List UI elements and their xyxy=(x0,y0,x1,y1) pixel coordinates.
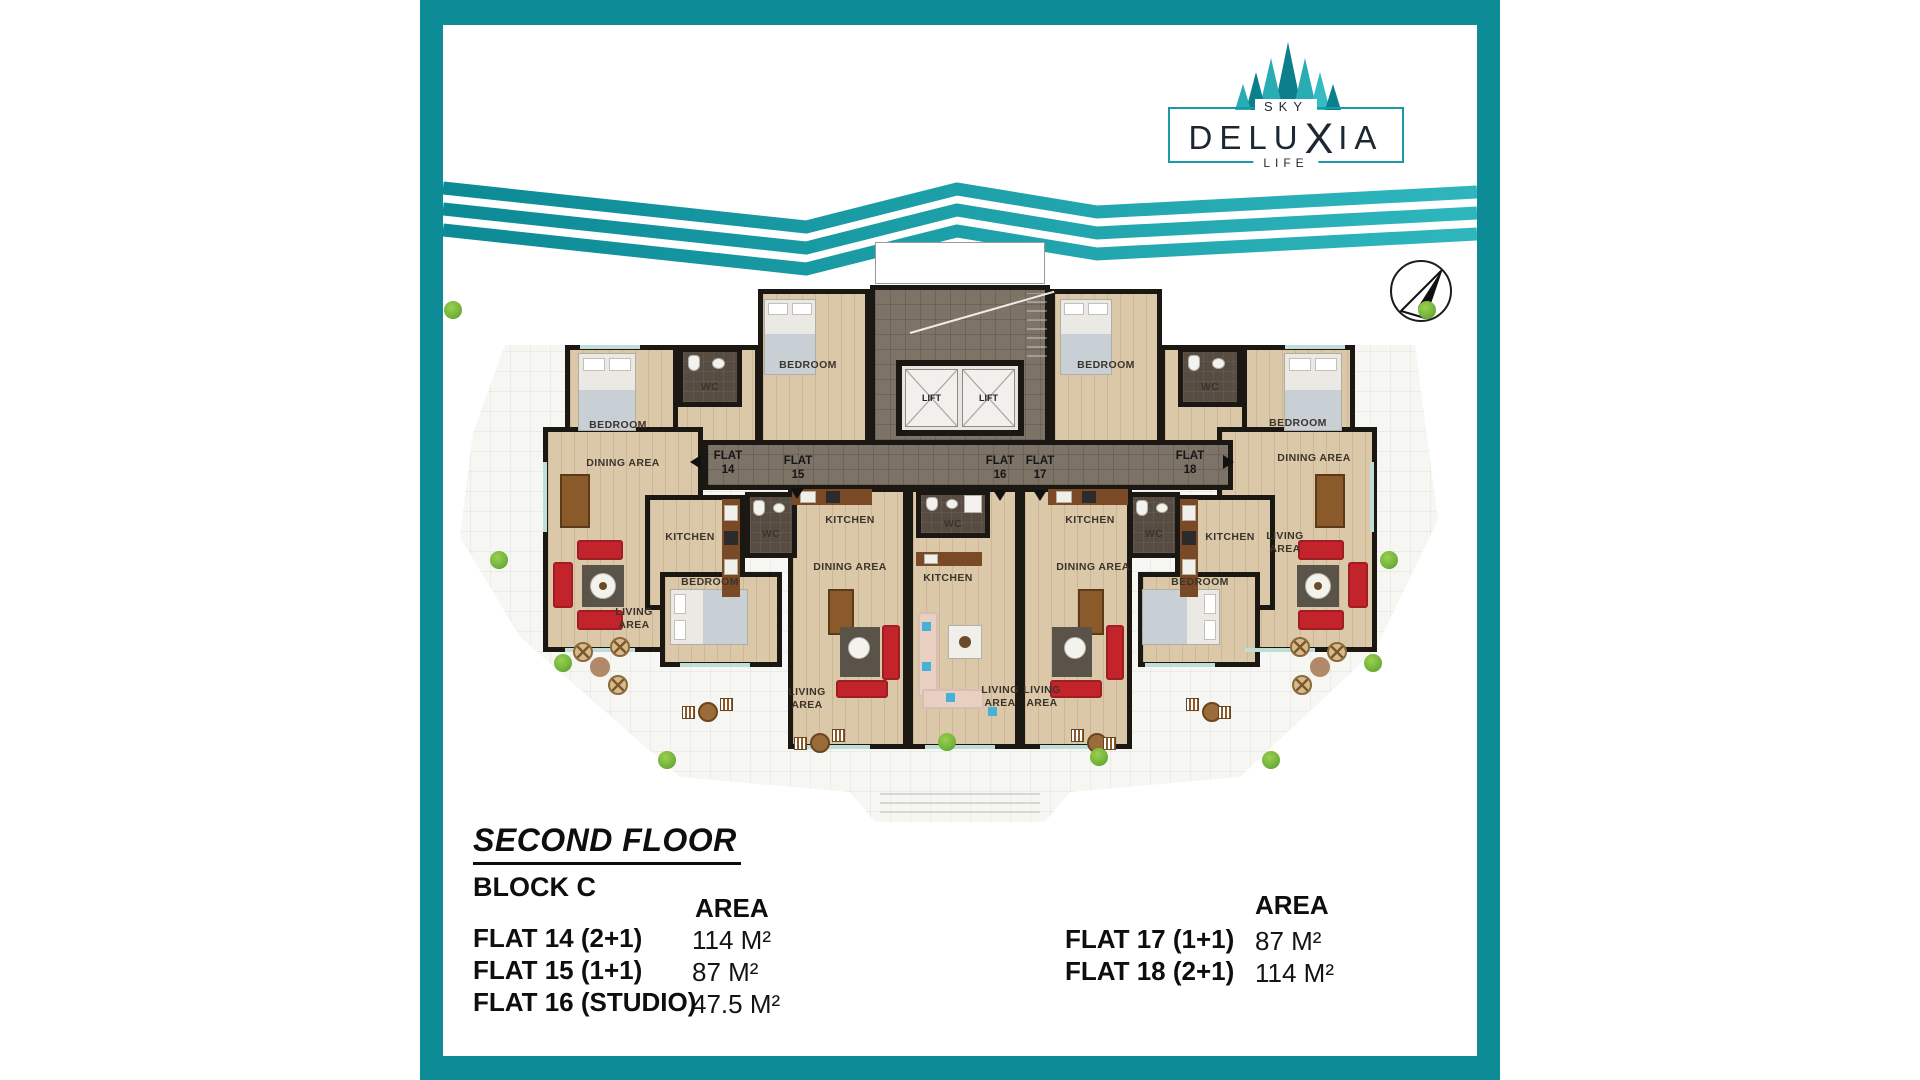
flat-number: 14 xyxy=(722,464,735,476)
balcony-table xyxy=(810,733,830,753)
logo: SKY DELUXIA LIFE xyxy=(1168,34,1412,168)
logo-name-post: IA xyxy=(1338,119,1383,156)
room-label-kitchen: KITCHEN xyxy=(1065,514,1114,526)
flat-row-area: 87 M² xyxy=(692,957,758,988)
plant xyxy=(554,654,572,672)
coffee-table-center xyxy=(1314,582,1322,590)
room-label-bedroom: BEDROOM xyxy=(589,419,647,431)
sink xyxy=(712,358,725,369)
room-label-kitchen: KITCHEN xyxy=(825,514,874,526)
lift-label: LIFT xyxy=(979,393,998,403)
sink xyxy=(773,503,785,513)
flat-word: FLAT xyxy=(986,455,1015,467)
room-label-living: LIVINGAREA xyxy=(1023,684,1060,710)
frame-right xyxy=(1477,0,1500,1080)
flat-number: 15 xyxy=(792,469,805,481)
stove xyxy=(724,531,738,545)
room-label-bedroom: BEDROOM xyxy=(1171,576,1229,588)
flat-word: FLAT xyxy=(1176,450,1205,462)
room-label-wc: WC xyxy=(1145,528,1163,540)
entry-arrow-flat-15 xyxy=(790,488,804,499)
room-label-kitchen: KITCHEN xyxy=(665,531,714,543)
plant xyxy=(1380,551,1398,569)
rattan-chair xyxy=(610,637,630,657)
toilet xyxy=(688,355,700,371)
block-subtitle: BLOCK C xyxy=(473,872,596,903)
logo-sky-text: SKY xyxy=(1255,99,1317,114)
rattan-chair xyxy=(608,675,628,695)
room-label-dining: DINING AREA xyxy=(1056,561,1129,573)
room-label-dining: DINING AREA xyxy=(813,561,886,573)
entry-arrow-flat-18 xyxy=(1223,455,1234,469)
sofa xyxy=(577,540,623,560)
entry-arrow-flat-16 xyxy=(993,490,1007,501)
living-line2: AREA xyxy=(618,619,649,631)
flat-tag-16: FLAT16 xyxy=(983,455,1017,483)
room-label-wc: WC xyxy=(701,381,719,393)
living-line2: AREA xyxy=(791,699,822,711)
rattan-chair xyxy=(1290,637,1310,657)
pillow-blue xyxy=(922,662,931,671)
balcony-chair xyxy=(720,698,733,711)
room-label-bedroom: BEDROOM xyxy=(779,359,837,371)
plant xyxy=(1090,748,1108,766)
living-line1: LIVING xyxy=(788,686,825,698)
rattan-chair xyxy=(573,642,593,662)
flat-number: 16 xyxy=(994,469,1007,481)
stairs xyxy=(1027,293,1047,357)
room-label-living: LIVINGAREA xyxy=(981,684,1018,710)
room-label-bedroom: BEDROOM xyxy=(681,576,739,588)
shower xyxy=(964,495,982,513)
toilet xyxy=(926,497,938,511)
lift-cell: LIFT xyxy=(962,369,1015,427)
lift-shaft: LIFT LIFT xyxy=(896,360,1024,436)
balcony-chair xyxy=(682,706,695,719)
flat-tag-14: FLAT14 xyxy=(711,450,745,478)
balcony-chair xyxy=(832,729,845,742)
sink xyxy=(724,559,738,575)
flat-word: FLAT xyxy=(1026,455,1055,467)
dining-table xyxy=(560,474,590,528)
flat-row-label: FLAT 18 (2+1) xyxy=(1065,956,1234,987)
flat-row-area: 87 M² xyxy=(1255,926,1321,957)
window xyxy=(1370,462,1374,532)
sink xyxy=(1212,358,1225,369)
flat-row-label: FLAT 16 (STUDIO) xyxy=(473,987,696,1018)
rattan-chair xyxy=(1292,675,1312,695)
frame-bottom xyxy=(420,1056,1500,1080)
balcony-chair xyxy=(794,737,807,750)
plant xyxy=(658,751,676,769)
flat-row-label: FLAT 15 (1+1) xyxy=(473,955,642,986)
page: SKY DELUXIA LIFE xyxy=(0,0,1920,1080)
dining-table xyxy=(1315,474,1345,528)
window xyxy=(680,663,750,667)
plant xyxy=(938,733,956,751)
logo-frame: SKY DELUXIA LIFE xyxy=(1168,107,1404,163)
window xyxy=(580,345,640,349)
balcony-chair xyxy=(1071,729,1084,742)
sofa xyxy=(1106,625,1124,680)
toilet xyxy=(1188,355,1200,371)
rattan-chair xyxy=(1327,642,1347,662)
flat-row-area: 114 M² xyxy=(692,925,771,956)
balcony-chair xyxy=(1218,706,1231,719)
plant xyxy=(1262,751,1280,769)
room-label-kitchen: KITCHEN xyxy=(1205,531,1254,543)
flat-tag-17: FLAT17 xyxy=(1023,455,1057,483)
stove xyxy=(826,491,840,503)
flat-row-area: 114 M² xyxy=(1255,958,1334,989)
bed xyxy=(670,589,748,645)
flat-row-label: FLAT 17 (1+1) xyxy=(1065,924,1234,955)
sink xyxy=(924,554,938,564)
balcony-chair xyxy=(1103,737,1116,750)
area-header-right: AREA xyxy=(1255,890,1329,921)
living-line1: LIVING xyxy=(615,606,652,618)
flat-number: 18 xyxy=(1184,464,1197,476)
flat-row-label: FLAT 14 (2+1) xyxy=(473,923,642,954)
plant xyxy=(444,301,462,319)
sofa xyxy=(1348,562,1368,608)
window xyxy=(1145,663,1215,667)
sink xyxy=(1182,505,1196,521)
window xyxy=(925,745,995,749)
sofa xyxy=(553,562,573,608)
living-line1: LIVING xyxy=(1266,530,1303,542)
sink xyxy=(1056,491,1072,503)
plant xyxy=(1364,654,1382,672)
pillow-blue xyxy=(946,693,955,702)
coffee-table-center xyxy=(599,582,607,590)
stove xyxy=(1082,491,1096,503)
sofa xyxy=(1298,540,1344,560)
terrace-steps xyxy=(880,793,1040,819)
sink xyxy=(946,499,958,509)
room-label-kitchen: KITCHEN xyxy=(923,572,972,584)
room-label-dining: DINING AREA xyxy=(1277,452,1350,464)
plant xyxy=(490,551,508,569)
roof-outline xyxy=(875,242,1045,284)
room-label-living: LIVINGAREA xyxy=(788,686,825,712)
flat-row-area: 47.5 M² xyxy=(692,989,780,1020)
sink xyxy=(724,505,738,521)
room-label-wc: WC xyxy=(762,528,780,540)
flat-word: FLAT xyxy=(784,455,813,467)
logo-life-text: LIFE xyxy=(1253,156,1318,170)
frame-top xyxy=(420,0,1500,25)
plant xyxy=(1418,301,1436,319)
bed xyxy=(1142,589,1220,645)
room-label-bedroom: BEDROOM xyxy=(1269,417,1327,429)
sofa xyxy=(836,680,888,698)
flat-word: FLAT xyxy=(714,450,743,462)
coffee-table xyxy=(1064,637,1086,659)
living-line2: AREA xyxy=(1026,697,1057,709)
coffee-table xyxy=(848,637,870,659)
window xyxy=(1285,345,1345,349)
entry-arrow-flat-14 xyxy=(690,455,701,469)
sofa xyxy=(1298,610,1344,630)
room-label-living: LIVINGAREA xyxy=(1266,530,1303,556)
area-header-left: AREA xyxy=(695,893,769,924)
flat-tag-18: FLAT18 xyxy=(1173,450,1207,478)
terrace-table xyxy=(1310,657,1330,677)
fireplace-center xyxy=(959,636,971,648)
sink xyxy=(1182,559,1196,575)
toilet xyxy=(1136,500,1148,516)
living-line1: LIVING xyxy=(981,684,1018,696)
flat-tag-15: FLAT15 xyxy=(781,455,815,483)
lift-cell: LIFT xyxy=(905,369,958,427)
toilet xyxy=(753,500,765,516)
living-line2: AREA xyxy=(984,697,1015,709)
entry-arrow-flat-17 xyxy=(1033,490,1047,501)
sofa xyxy=(882,625,900,680)
page-title: SECOND FLOOR xyxy=(473,822,741,865)
floor-plan: LIFT LIFT xyxy=(430,237,1445,832)
sink xyxy=(1156,503,1168,513)
living-line1: LIVING xyxy=(1023,684,1060,696)
room-label-wc: WC xyxy=(944,518,962,530)
lift-label: LIFT xyxy=(922,393,941,403)
window xyxy=(543,462,547,532)
room-label-wc: WC xyxy=(1201,381,1219,393)
balcony-chair xyxy=(1186,698,1199,711)
pillow-blue xyxy=(922,622,931,631)
room-label-bedroom: BEDROOM xyxy=(1077,359,1135,371)
flat-number: 17 xyxy=(1034,469,1047,481)
balcony-table xyxy=(698,702,718,722)
logo-name-pre: DELU xyxy=(1189,119,1305,156)
terrace-table xyxy=(590,657,610,677)
stove xyxy=(1182,531,1196,545)
living-line2: AREA xyxy=(1269,543,1300,555)
room-label-dining: DINING AREA xyxy=(586,457,659,469)
room-label-living: LIVINGAREA xyxy=(615,606,652,632)
